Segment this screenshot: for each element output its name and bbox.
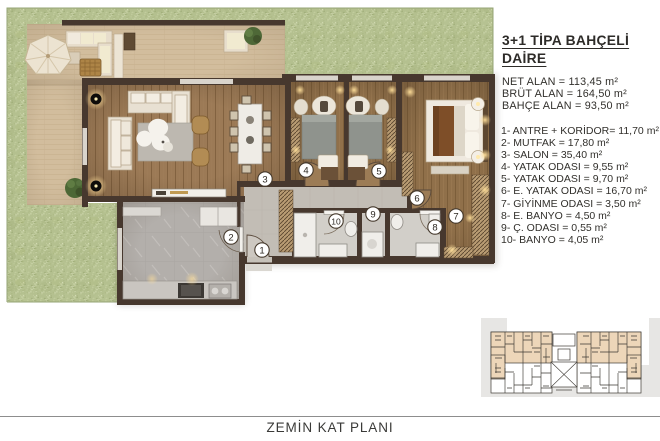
svg-text:7: 7: [453, 211, 458, 222]
svg-text:2: 2: [228, 232, 233, 243]
svg-text:3: 3: [262, 174, 267, 185]
svg-text:10: 10: [331, 216, 341, 226]
svg-text:6: 6: [414, 193, 419, 204]
svg-text:8: 8: [432, 222, 437, 233]
svg-text:5: 5: [376, 166, 381, 177]
svg-text:9: 9: [370, 209, 375, 220]
svg-text:1: 1: [259, 245, 264, 256]
svg-text:4: 4: [303, 165, 308, 176]
